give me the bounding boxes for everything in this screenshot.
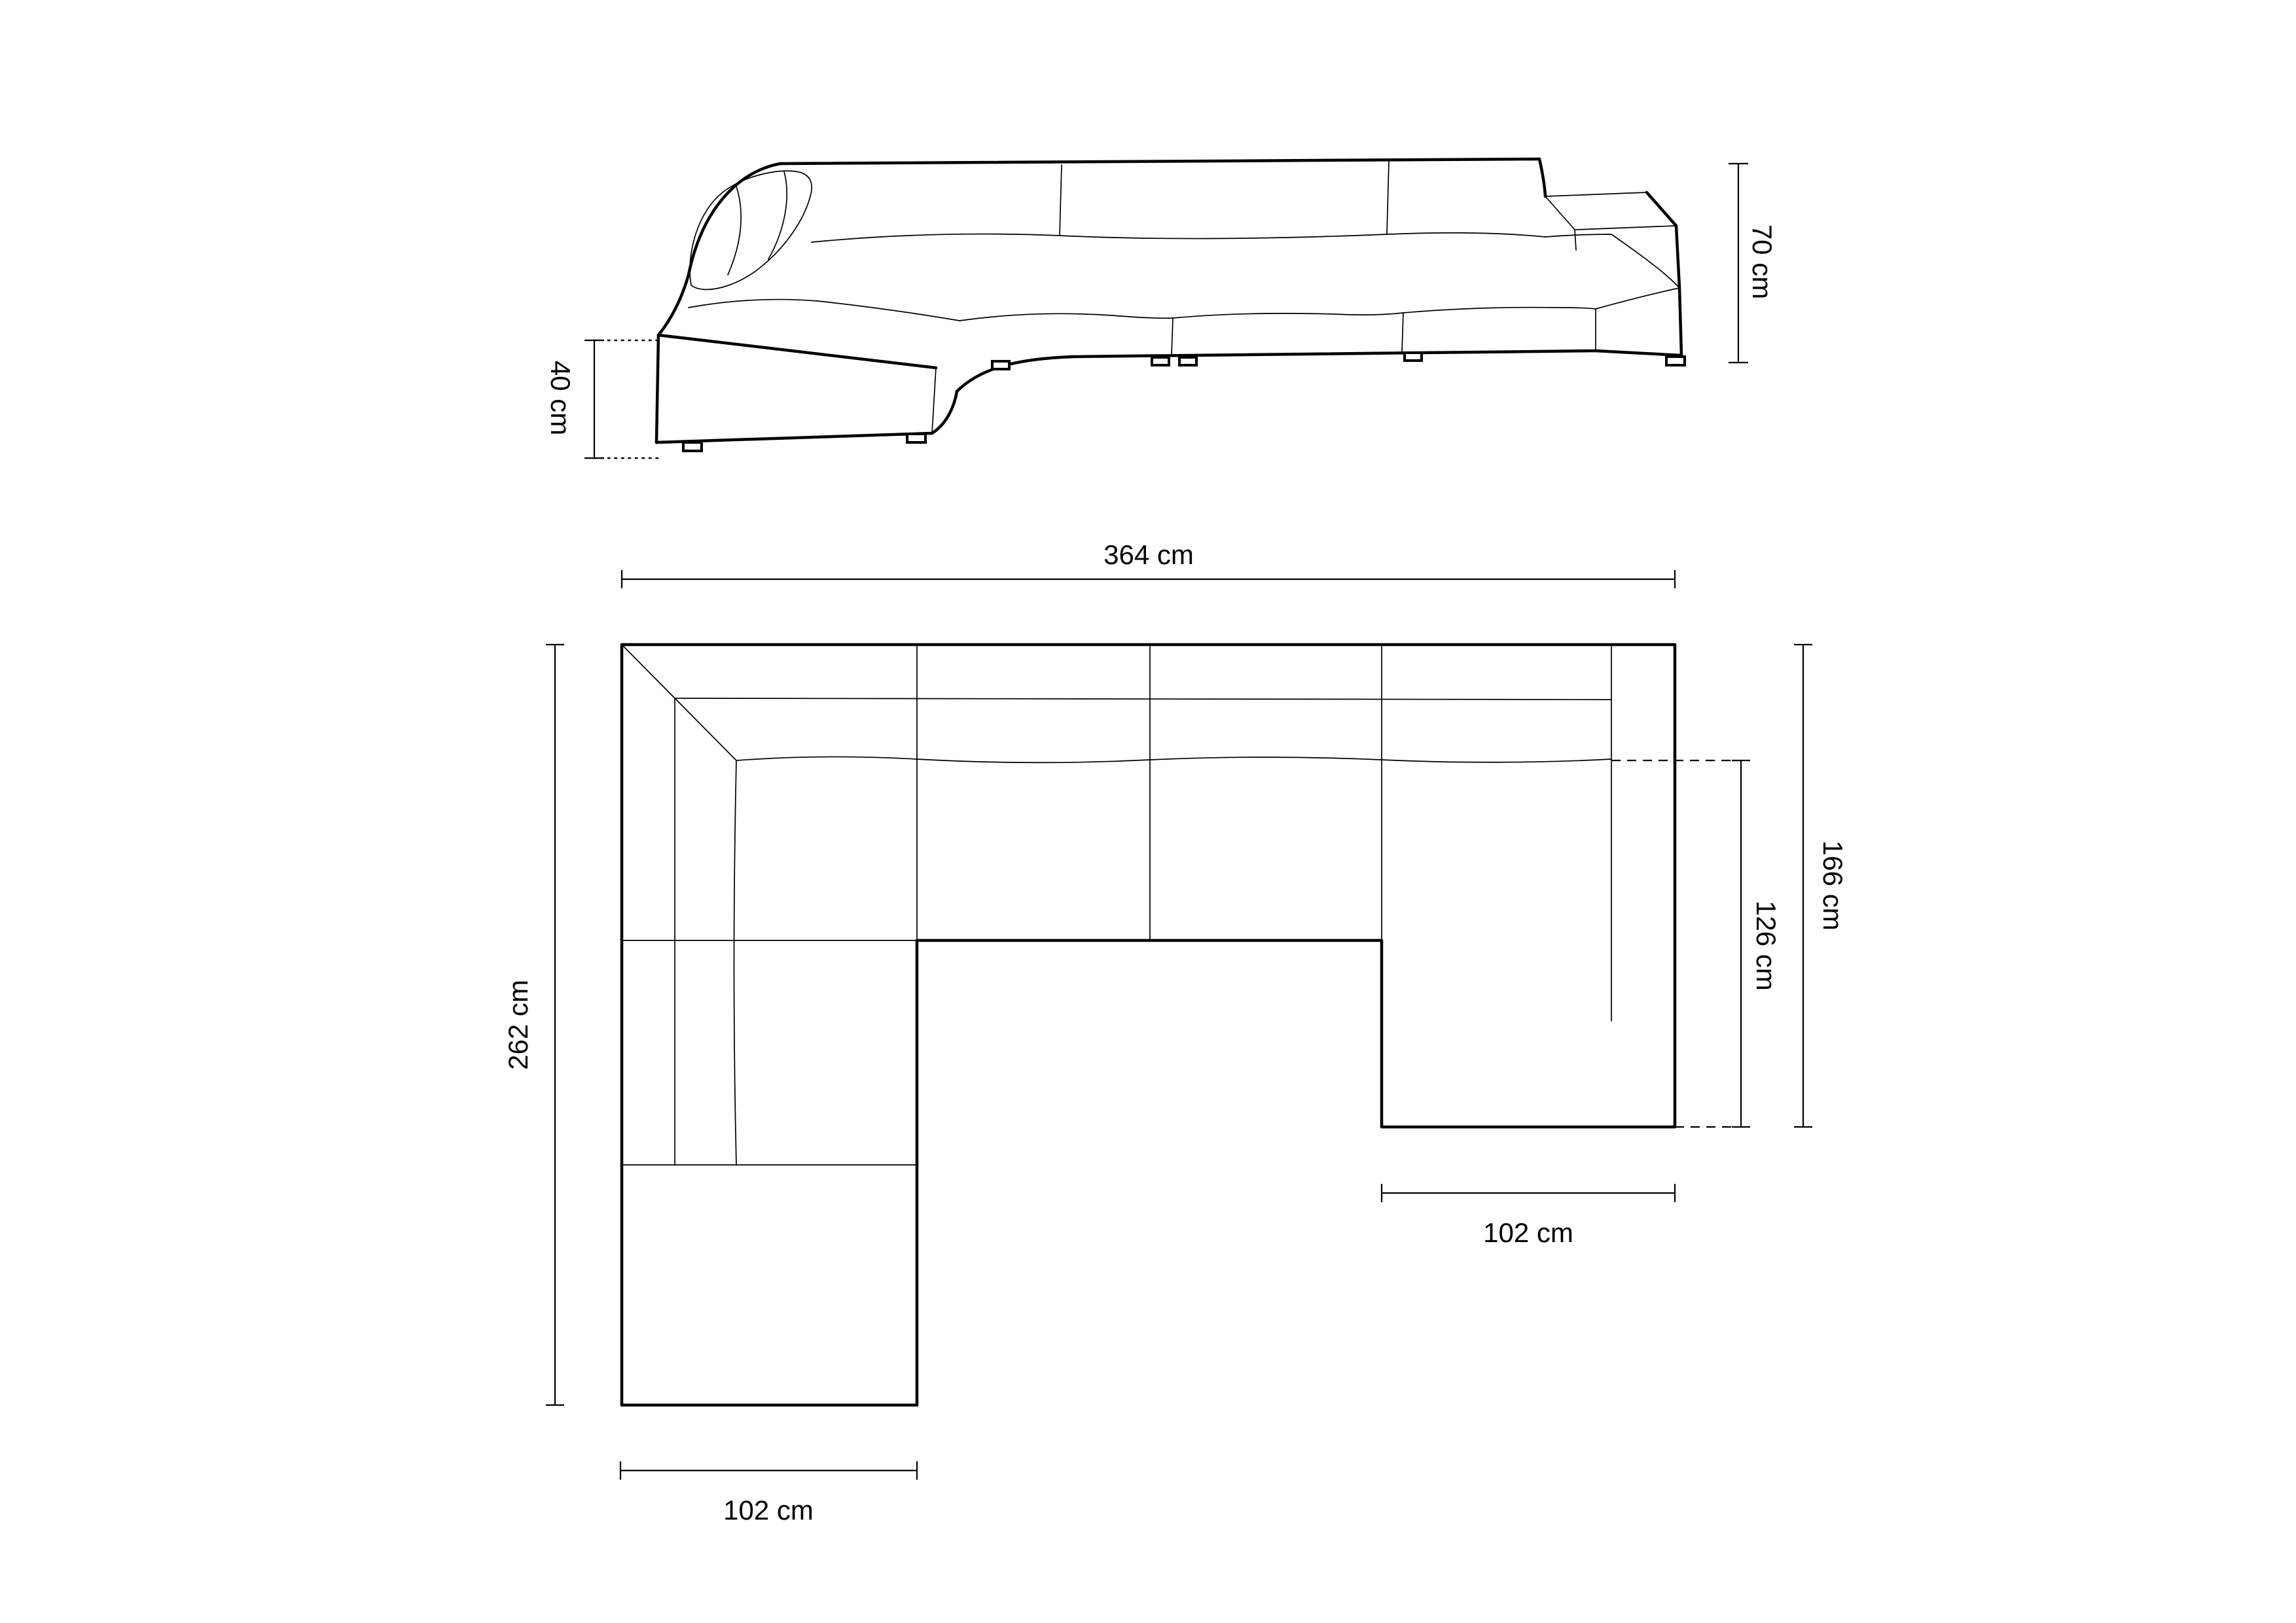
right-depth-label: 166 cm xyxy=(1818,840,1848,931)
base-leg-3 xyxy=(1179,357,1196,365)
chaise-right-leg xyxy=(1666,357,1685,365)
seat-height-dimension-label: 40 cm xyxy=(545,361,576,435)
seat-cushion-seam-1 xyxy=(1172,318,1173,355)
seat-height-dimension: 40 cm xyxy=(545,340,662,458)
armrest-top-face xyxy=(1545,192,1676,250)
sofa-left-outer-curve xyxy=(658,164,780,335)
center-seat-front-seam xyxy=(960,308,1596,321)
front-elevation-view: 70 cm 40 cm xyxy=(545,159,1778,458)
base-leg-2 xyxy=(1152,357,1169,365)
left-arm-width-dimension: 102 cm xyxy=(620,1461,917,1525)
plan-left-seat-vertical-seam xyxy=(734,760,737,1165)
right-chaise-width-dimension: 102 cm xyxy=(1382,1184,1675,1248)
ottoman-top-front-edge xyxy=(658,335,936,368)
chaise-length-dimension: 126 cm xyxy=(1732,760,1782,1127)
base-leg-4 xyxy=(1405,353,1422,361)
seat-front-right-curve xyxy=(932,391,957,433)
headrest-pillow-outline xyxy=(690,171,812,289)
plan-backrest-inner-line xyxy=(675,698,1611,700)
plan-outer-boundary xyxy=(622,645,1675,1405)
headrest-pillow-seam-1 xyxy=(728,185,741,275)
ottoman-right-seam xyxy=(932,368,936,433)
overall-depth-dimension: 262 cm xyxy=(503,645,564,1405)
chaise-front-top-seam xyxy=(1596,288,1679,309)
plan-corner-diagonal xyxy=(622,645,736,760)
sofa-dimension-diagram: 70 cm 40 cm 364 cm xyxy=(0,0,2296,1623)
base-leg-1 xyxy=(992,361,1009,369)
sofa-back-top-edge xyxy=(780,159,1539,164)
height-dimension: 70 cm xyxy=(1729,164,1778,363)
chaise-length-label: 126 cm xyxy=(1751,901,1782,991)
left-arm-width-label: 102 cm xyxy=(723,1495,814,1525)
ottoman-left-leg xyxy=(683,442,702,451)
left-seat-front-seam xyxy=(689,300,960,321)
ottoman-bottom-edge xyxy=(656,433,932,442)
chaise-seat-top-seam xyxy=(1545,234,1679,288)
right-chaise-width-label: 102 cm xyxy=(1483,1217,1573,1248)
ottoman-right-leg xyxy=(907,434,925,442)
seat-cushion-seam-2 xyxy=(1402,313,1403,352)
overall-width-label: 364 cm xyxy=(1103,539,1194,570)
base-bottom-edge xyxy=(957,351,1596,391)
back-right-corner-edge xyxy=(1539,159,1545,196)
height-dimension-label: 70 cm xyxy=(1747,224,1778,299)
overall-width-dimension: 364 cm xyxy=(622,539,1675,588)
overall-depth-label: 262 cm xyxy=(503,980,533,1070)
chaise-bottom-edge xyxy=(1596,351,1681,355)
plan-seat-front-line xyxy=(736,757,1611,762)
ottoman-left-edge xyxy=(656,335,658,442)
headrest-pillow-seam-2 xyxy=(768,171,787,259)
back-cushion-seam-2 xyxy=(1387,162,1389,234)
top-plan-view: 364 cm 262 cm xyxy=(503,539,1848,1525)
right-depth-dimension: 166 cm xyxy=(1794,645,1848,1127)
back-seat-boundary-seam xyxy=(812,233,1545,242)
back-cushion-seam-1 xyxy=(1060,165,1062,236)
diagram-page: 70 cm 40 cm 364 cm xyxy=(0,0,2296,1623)
